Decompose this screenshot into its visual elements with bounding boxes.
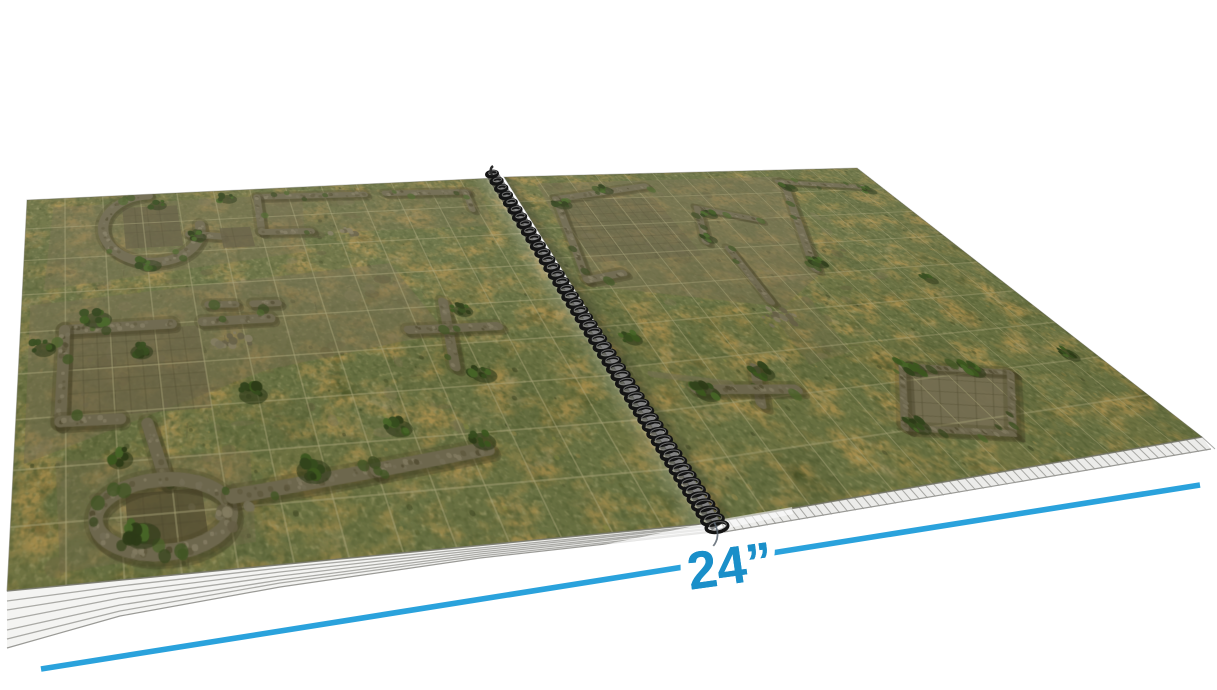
svg-text:24”: 24” — [684, 531, 777, 601]
